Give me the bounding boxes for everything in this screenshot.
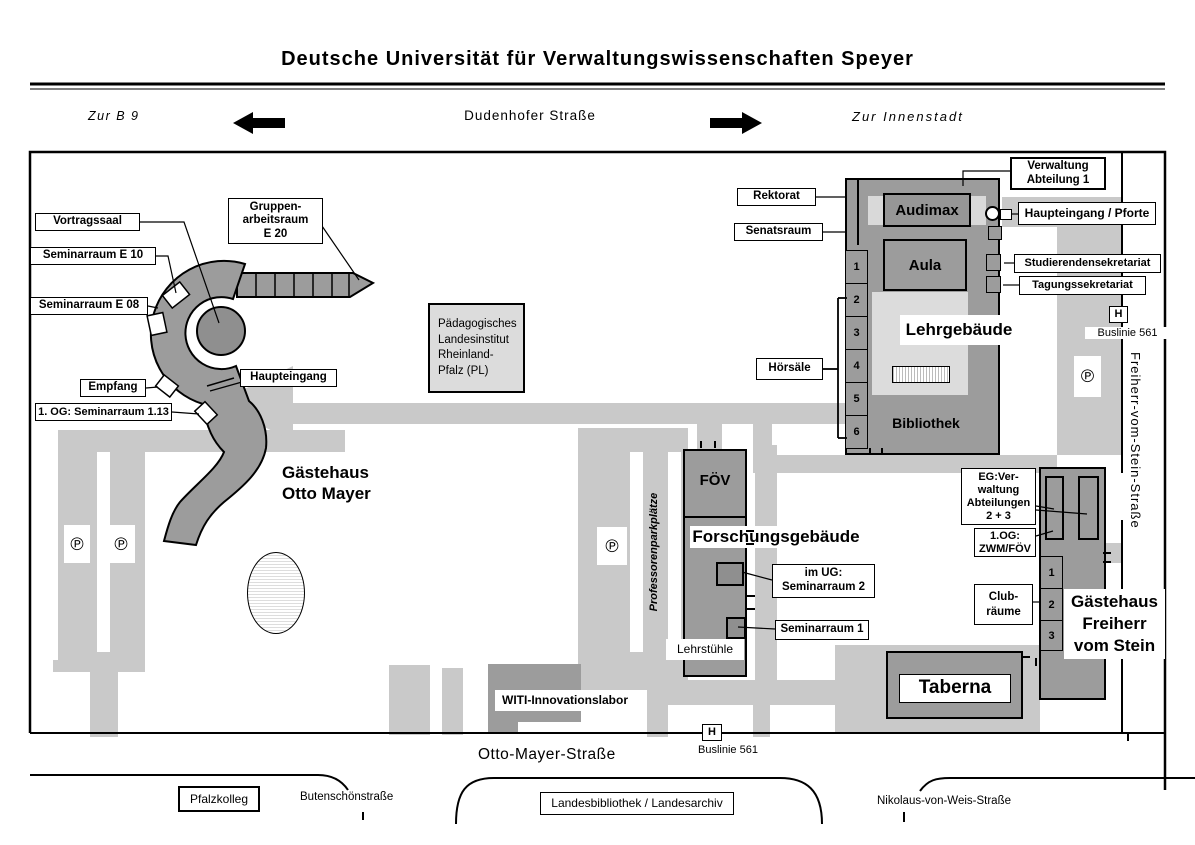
fvs-inner-block (1078, 476, 1099, 540)
callout-rektorat: Rektorat (737, 188, 816, 206)
callout-vortragssaal: Vortragssaal (35, 213, 140, 231)
fvs-cell: 2 (1040, 588, 1063, 621)
callout-line: E 20 (264, 228, 288, 242)
path-stub-south (442, 668, 463, 735)
fvs-inner-block (1045, 476, 1064, 540)
callout-tagungssekretariat: Tagungssekretariat (1019, 276, 1146, 295)
entrance-tick (746, 543, 754, 545)
path-stub-south (753, 705, 770, 737)
callout-studierendensekretariat: Studierendensekretariat (1014, 254, 1161, 273)
hoersaal-cell: 3 (845, 316, 868, 350)
street-label-dudenhofer: Dudenhofer Straße (440, 108, 620, 123)
label-professorenparkplaetze: Professorenparkplätze (648, 484, 662, 620)
callout-line: Abteilung 1 (1027, 174, 1090, 188)
callout-line: räume (986, 605, 1021, 620)
entrance-circle-icon (985, 206, 1000, 221)
label-line: vom Stein (1074, 635, 1155, 657)
parking-lane-divider (668, 452, 681, 652)
callout-line: waltung (978, 484, 1020, 497)
entrance-tick (747, 595, 755, 597)
room-seminarraum-2 (716, 562, 744, 586)
path-west-stem (90, 663, 118, 737)
hoersaal-cell: 5 (845, 382, 868, 416)
entrance-tick (747, 608, 755, 610)
fvs-cell: 1 (1040, 556, 1063, 589)
building-label-lehrgebaeude: Lehrgebäude (900, 315, 1018, 345)
bus-stop-icon: H (1109, 306, 1128, 323)
callout-senatsraum: Senatsraum (734, 223, 823, 241)
road-nikolaus (920, 778, 1195, 791)
callout-og-seminarraum: 1. OG: Seminarraum 1.13 (35, 403, 172, 421)
callout-line: EG:Ver- (978, 471, 1018, 484)
callout-clubraeume: Club- räume (974, 584, 1033, 625)
entrance-tick (746, 530, 754, 532)
callout-seminarraum-e10: Seminarraum E 10 (30, 247, 156, 265)
callout-line: ZWM/FÖV (979, 543, 1031, 556)
entrance-tick (1035, 658, 1037, 666)
parking-icon: ℗ (1074, 356, 1101, 397)
label-line: Pädagogisches (438, 317, 517, 333)
hoersaal-cell: 1 (845, 250, 868, 284)
callout-line: Club- (989, 590, 1018, 605)
callout-line: 2 + 3 (986, 510, 1011, 523)
callout-gruppenarbeitsraum: Gruppen- arbeitsraum E 20 (228, 198, 323, 244)
hatched-feature (892, 366, 950, 383)
vortragssaal-rotunda (197, 307, 245, 355)
fvs-cell: 3 (1040, 620, 1063, 651)
entrance-tick (714, 441, 716, 448)
callout-paedagogisches-landesinstitut: Pädagogisches Landesinstitut Rheinland- … (428, 303, 525, 393)
bus-line-label: Buslinie 561 (688, 744, 768, 756)
campus-map: FÖV Audimax Aula Bibliothek 1 2 3 4 5 6 … (0, 0, 1195, 845)
parking-icon: ℗ (107, 525, 135, 563)
entrance-tick (869, 448, 871, 455)
label-line: Gästehaus (1071, 591, 1158, 613)
callout-line: Abteilungen (967, 497, 1031, 510)
callout-line: Verwaltung (1027, 160, 1088, 174)
street-label-zur-innenstadt: Zur Innenstadt (852, 109, 964, 124)
hoersaal-cell: 4 (845, 349, 868, 383)
wing-divider (857, 178, 859, 245)
building-label-taberna: Taberna (899, 674, 1011, 703)
callout-pfalzkolleg: Pfalzkolleg (178, 786, 260, 812)
callout-line: Gruppen- (250, 201, 302, 215)
entrance-step-line (207, 378, 234, 386)
entrance-rect-icon (1000, 209, 1012, 220)
callout-empfang: Empfang (80, 379, 146, 397)
street-label-otto-mayer: Otto-Mayer-Straße (478, 746, 616, 764)
path-west-bar (53, 660, 143, 672)
callout-hoersaele: Hörsäle (756, 358, 823, 380)
audimax-flank (971, 196, 986, 225)
street-label-nikolaus: Nikolaus-von-Weis-Straße (877, 795, 1011, 807)
callout-verwaltung-abteilung1: Verwaltung Abteilung 1 (1010, 157, 1106, 190)
page-title: Deutsche Universität für Verwaltungswiss… (0, 48, 1195, 71)
path-stub-south (389, 665, 430, 735)
label-line: Otto Mayer (282, 483, 371, 504)
callout-eg-verwaltung: EG:Ver- waltung Abteilungen 2 + 3 (961, 468, 1036, 525)
bus-line-label: Buslinie 561 (1085, 327, 1170, 339)
audimax-flank (868, 196, 883, 225)
hoersaal-cell: 2 (845, 283, 868, 317)
building-label-gaestehaus-fvs: Gästehaus Freiherr vom Stein (1064, 589, 1165, 659)
callout-haupteingang: Haupteingang (240, 369, 337, 387)
hall-aula: Aula (883, 239, 967, 291)
callout-line: Seminarraum 2 (782, 581, 865, 595)
entrance-tick (1103, 552, 1111, 554)
callout-seminarraum-e08: Seminarraum E 08 (30, 297, 148, 315)
path-stub-south (647, 690, 668, 737)
room-seminarraum-1 (726, 617, 746, 639)
building-divider (683, 516, 747, 518)
path-main-corridor (240, 403, 872, 424)
entrance-tick (1103, 561, 1111, 563)
label-line: Pfalz (PL) (438, 364, 489, 380)
pond (247, 552, 305, 634)
building-label-forschungsgebaeude: Forschungsgebäude (690, 526, 862, 548)
bus-stop-icon: H (702, 724, 722, 741)
building-label-bibliothek: Bibliothek (888, 414, 964, 432)
arrow-left-icon (233, 112, 285, 134)
callout-og-zwm-foev: 1.OG: ZWM/FÖV (974, 528, 1036, 557)
entrance-square-icon (986, 276, 1001, 293)
building-witi-annex (488, 710, 518, 732)
entrance-tick (1022, 656, 1030, 658)
callout-line: 1.OG: (990, 530, 1020, 543)
parking-icon: ℗ (597, 527, 627, 565)
entrance-tick (1127, 733, 1129, 741)
building-label-gaestehaus-otto-mayer: Gästehaus Otto Mayer (282, 462, 371, 504)
callout-landesbibliothek: Landesbibliothek / Landesarchiv (540, 792, 734, 815)
street-label-zur-b9: Zur B 9 (88, 109, 140, 123)
callout-seminarraum1: Seminarraum 1 (775, 620, 869, 640)
hoersaal-cell: 6 (845, 415, 868, 449)
entrance-tick (881, 448, 883, 455)
callout-lehrstuehle: Lehrstühle (666, 639, 744, 660)
entrance-tick (700, 441, 702, 448)
hall-audimax: Audimax (883, 193, 971, 227)
entrance-square-icon (986, 254, 1001, 271)
label-line: Gästehaus (282, 462, 371, 483)
building-label-foev: FÖV (687, 470, 743, 490)
callout-haupteingang-pforte: Haupteingang / Pforte (1018, 202, 1156, 225)
entrance-square-icon (988, 226, 1002, 240)
otto-mayer-arm (237, 273, 373, 297)
building-label-witi: WITI-Innovationslabor (495, 690, 635, 711)
parking-icon: ℗ (64, 525, 90, 563)
callout-line: arbeitsraum (243, 214, 309, 228)
label-line: Freiherr (1082, 613, 1146, 635)
street-label-butenschoenstrasse: Butenschönstraße (300, 791, 393, 803)
label-line: Rheinland- (438, 348, 494, 364)
street-label-freiherr-vom-stein: Freiherr-vom-Stein-Straße (1128, 352, 1143, 552)
callout-line: im UG: (805, 567, 843, 581)
arrow-right-icon (710, 112, 762, 134)
label-line: Landesinstitut (438, 333, 509, 349)
parking-lane-divider (630, 452, 643, 652)
otto-mayer-arm-dividers (256, 274, 349, 296)
callout-im-ug-seminarraum2: im UG: Seminarraum 2 (772, 564, 875, 598)
